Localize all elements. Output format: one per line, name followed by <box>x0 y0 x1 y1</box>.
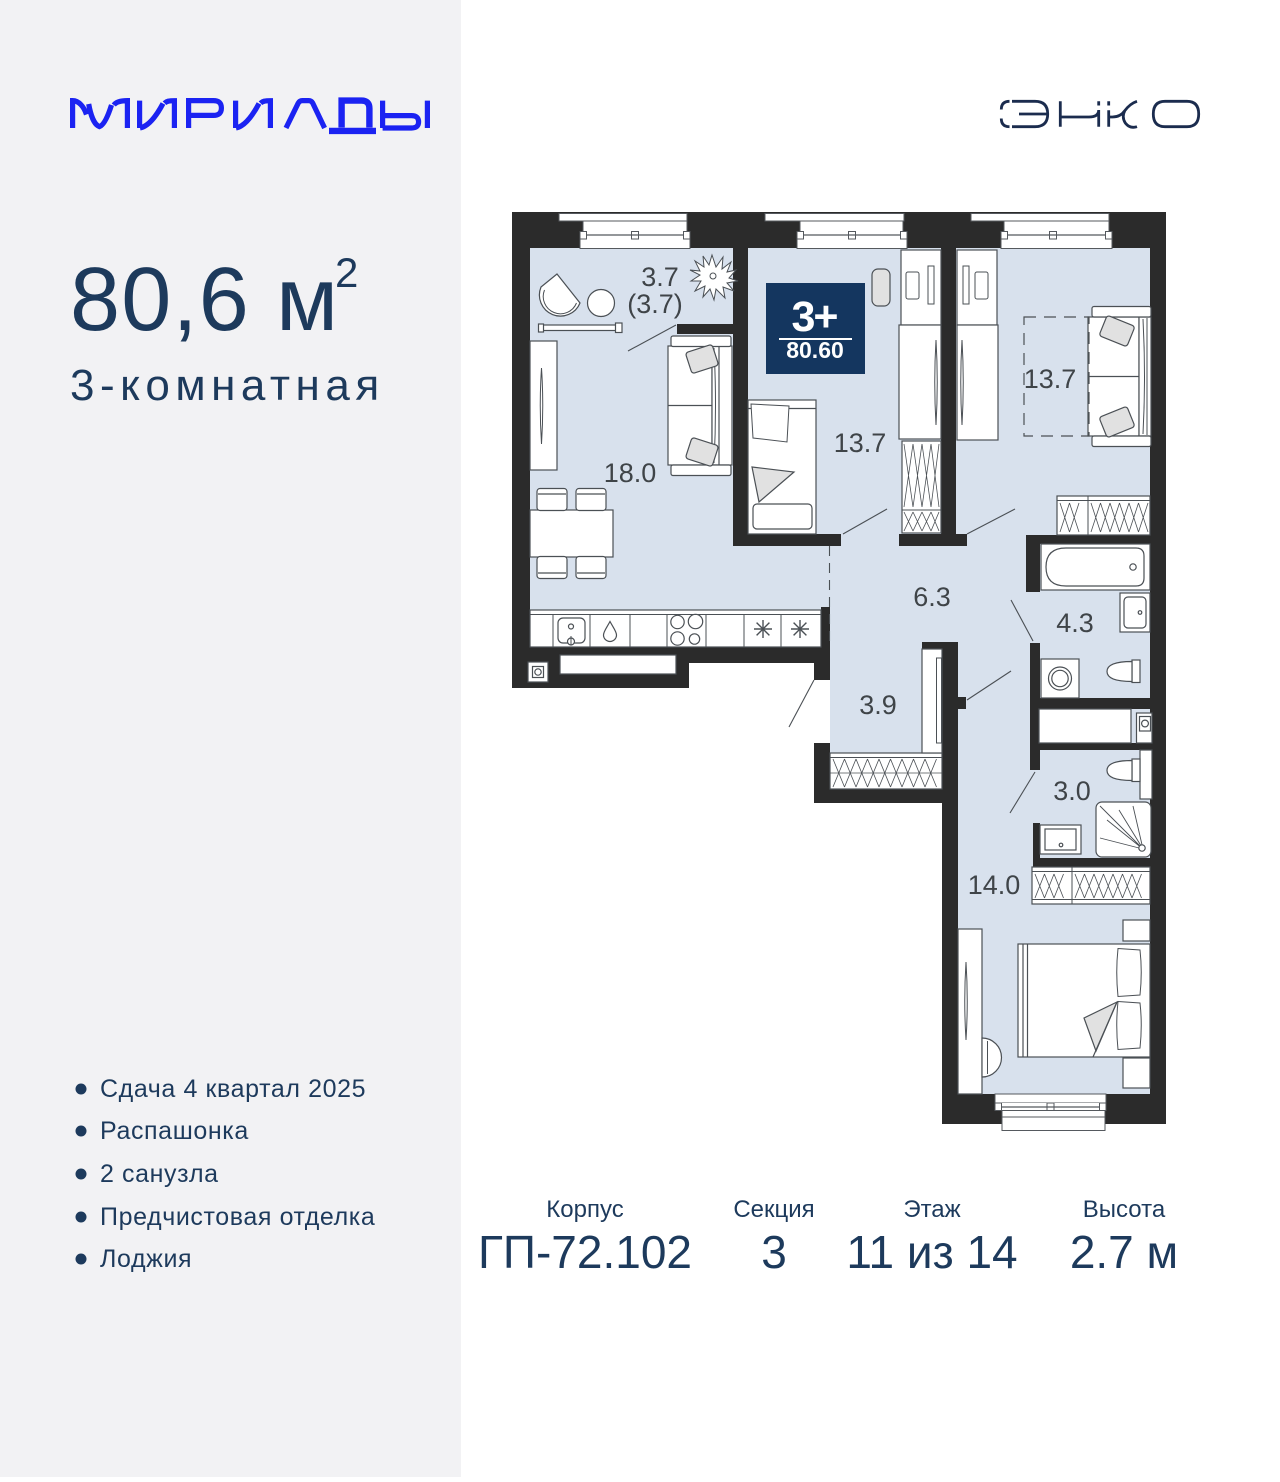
svg-text:Корпус: Корпус <box>546 1196 623 1223</box>
svg-text:80,6 м: 80,6 м <box>70 250 339 350</box>
svg-text:2.7 м: 2.7 м <box>1070 1226 1178 1278</box>
svg-text:Высота: Высота <box>1083 1196 1166 1223</box>
svg-text:Этаж: Этаж <box>903 1196 960 1223</box>
svg-text:4.3: 4.3 <box>1056 608 1094 638</box>
svg-text:18.0: 18.0 <box>604 458 657 488</box>
svg-text:2: 2 <box>335 249 358 296</box>
svg-text:Лоджия: Лоджия <box>100 1245 192 1273</box>
svg-text:Распашонка: Распашонка <box>100 1117 249 1145</box>
svg-text:3.7: 3.7 <box>641 262 679 292</box>
svg-text:3.0: 3.0 <box>1053 776 1091 806</box>
svg-text:3-комнатная: 3-комнатная <box>70 361 385 410</box>
svg-text:13.7: 13.7 <box>1024 364 1077 394</box>
svg-text:(3.7): (3.7) <box>627 289 683 319</box>
svg-text:14.0: 14.0 <box>968 870 1021 900</box>
svg-text:11 из 14: 11 из 14 <box>846 1226 1017 1278</box>
svg-text:3.9: 3.9 <box>859 690 897 720</box>
svg-text:Секция: Секция <box>733 1196 814 1223</box>
svg-text:6.3: 6.3 <box>913 582 951 612</box>
svg-text:3: 3 <box>761 1226 787 1278</box>
svg-text:Сдача 4 квартал 2025: Сдача 4 квартал 2025 <box>100 1075 366 1103</box>
svg-text:13.7: 13.7 <box>834 428 887 458</box>
svg-text:2 санузла: 2 санузла <box>100 1160 219 1188</box>
svg-text:80.60: 80.60 <box>786 337 844 363</box>
svg-text:Предчистовая отделка: Предчистовая отделка <box>100 1203 375 1231</box>
svg-text:3+: 3+ <box>791 293 837 341</box>
svg-text:ГП-72.102: ГП-72.102 <box>478 1226 692 1278</box>
